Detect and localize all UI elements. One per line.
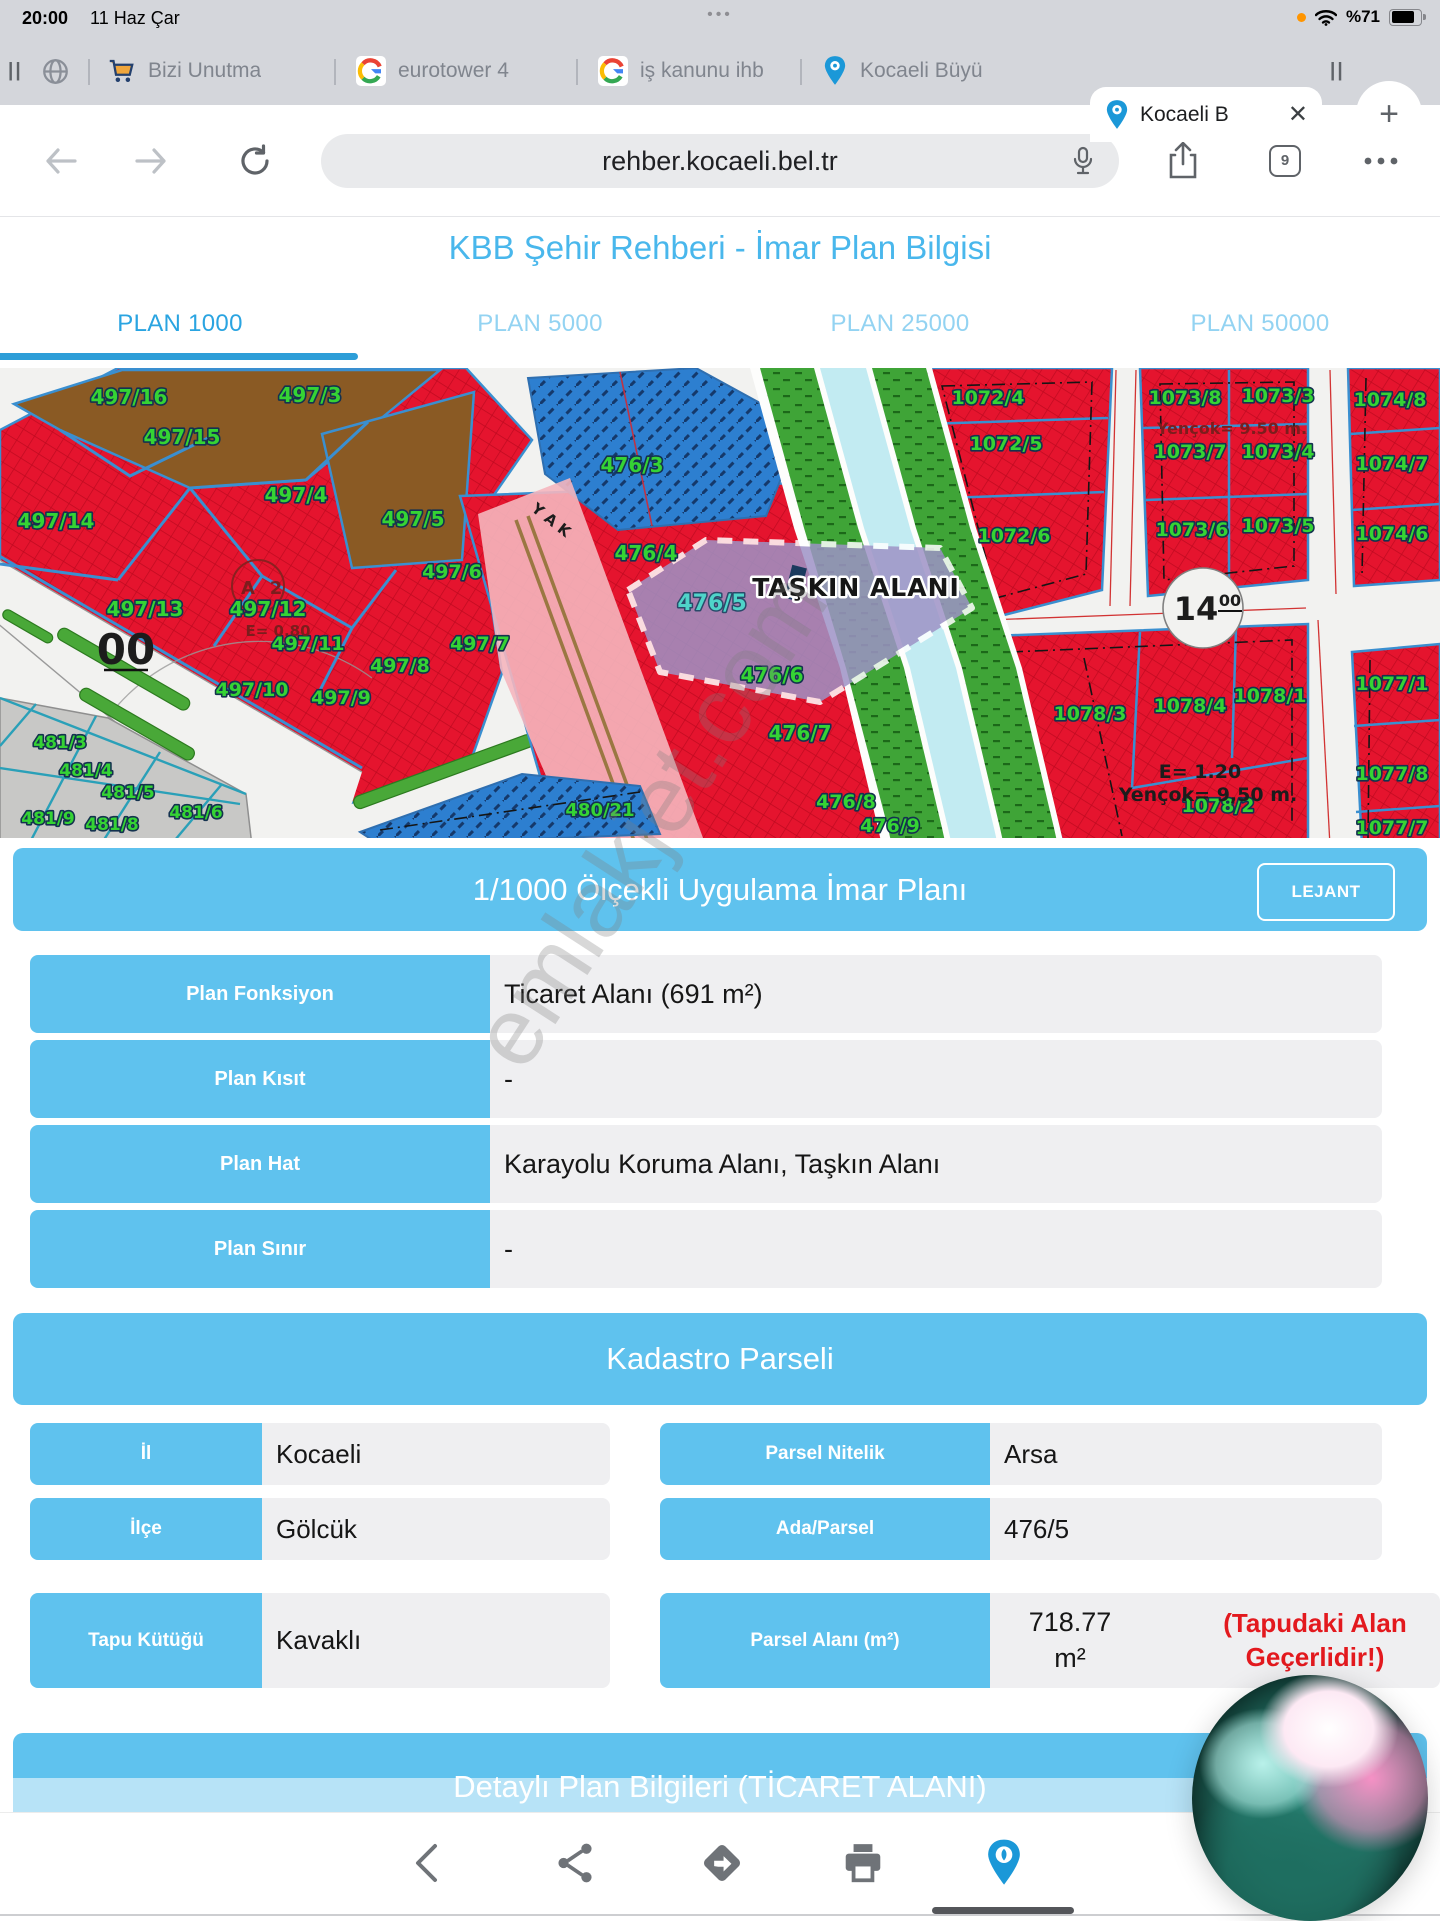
- map-label: 1078/1: [1233, 685, 1306, 707]
- map-label: 1072/5: [969, 433, 1042, 455]
- kadastro-banner: Kadastro Parseli: [13, 1313, 1427, 1405]
- forward-button[interactable]: [126, 105, 176, 216]
- map-label: 497/15: [144, 425, 221, 449]
- url-bar[interactable]: rehber.kocaeli.bel.tr: [321, 134, 1119, 188]
- map-label: Yençok= 9.50 m.: [1156, 419, 1307, 438]
- kocaeli-pin-icon: [1104, 99, 1130, 131]
- wifi-icon: [1315, 9, 1337, 26]
- map-label: 481/5: [101, 783, 155, 803]
- map-label: 476/9: [860, 815, 920, 837]
- cart-icon: [106, 56, 136, 86]
- toolbar-bottom-line: [0, 1914, 1440, 1916]
- map-label: 497/6: [422, 561, 482, 583]
- map-label: 1074/7: [1355, 453, 1428, 475]
- tab-divider: [88, 59, 90, 85]
- row-label: Ada/Parsel: [660, 1498, 990, 1560]
- map-label: 497/13: [107, 597, 184, 621]
- legend-button[interactable]: LEJANT: [1257, 863, 1395, 921]
- row-label: Plan Hat: [30, 1125, 490, 1203]
- map-label: 497/10: [215, 679, 288, 701]
- row-label: Plan Sınır: [30, 1210, 490, 1288]
- kadastro-row-il: İl Kocaeli: [30, 1423, 610, 1485]
- reload-button[interactable]: [230, 105, 280, 216]
- map-label: 1074/6: [1355, 523, 1428, 545]
- map-label: A: [241, 578, 255, 599]
- page-title: KBB Şehir Rehberi - İmar Plan Bilgisi: [0, 216, 1440, 280]
- map-label: 476/6: [741, 663, 804, 687]
- share-icon[interactable]: [549, 1837, 601, 1889]
- row-value: Ticaret Alanı (691 m²): [490, 955, 1382, 1033]
- stage-manager-dots-icon: •••: [0, 6, 1440, 24]
- parsel-alani-unit: m²: [990, 1641, 1150, 1676]
- kbb-logo-icon[interactable]: [978, 1837, 1030, 1889]
- map-label: 497/9: [311, 687, 371, 709]
- map-label: 480/21: [565, 800, 634, 821]
- tab-plan-5000[interactable]: PLAN 5000: [360, 280, 720, 368]
- directions-icon[interactable]: [696, 1837, 748, 1889]
- row-label: Parsel Alanı (m²): [660, 1593, 990, 1688]
- tab-divider: [334, 59, 336, 85]
- tab-is-kanunu[interactable]: iş kanunu ihb: [598, 37, 764, 105]
- row-value: -: [490, 1040, 1382, 1118]
- map-label: 481/3: [33, 733, 87, 753]
- map-label: 481/8: [85, 815, 139, 835]
- print-icon[interactable]: [837, 1837, 889, 1889]
- row-value: Kavaklı: [262, 1593, 610, 1688]
- map-label: 1077/8: [1355, 763, 1428, 785]
- row-label: Plan Kısıt: [30, 1040, 490, 1118]
- map-label: 1077/7: [1355, 817, 1428, 838]
- map-label: 1073/7: [1153, 441, 1226, 463]
- sidebar-grip-icon[interactable]: ||: [8, 37, 23, 105]
- tab-divider: [800, 59, 802, 85]
- url-text: rehber.kocaeli.bel.tr: [602, 146, 838, 177]
- kocaeli-pin-icon: [822, 55, 848, 87]
- row-value: Gölcük: [262, 1498, 610, 1560]
- map-label: 1072/6: [977, 525, 1050, 547]
- tab-count: 9: [1269, 145, 1301, 177]
- tab-label: Kocaeli B: [1140, 103, 1229, 127]
- kadastro-row-adaparsel: Ada/Parsel 476/5: [660, 1498, 1382, 1560]
- tab-eurotower[interactable]: eurotower 4: [356, 37, 509, 105]
- map-label: 497/4: [265, 483, 328, 507]
- kadastro-row-ilce: İlçe Gölcük: [30, 1498, 610, 1560]
- home-indicator[interactable]: [932, 1907, 1074, 1914]
- map-label: 476/7: [769, 721, 832, 745]
- map-label: 1074/8: [1353, 389, 1426, 411]
- map-label: 481/9: [21, 809, 75, 829]
- back-button[interactable]: [36, 105, 86, 216]
- tab-kocaeli-1[interactable]: Kocaeli Büyü: [822, 37, 983, 105]
- google-icon: [598, 56, 628, 86]
- plan-row-fonksiyon: Plan Fonksiyon Ticaret Alanı (691 m²): [30, 955, 1382, 1033]
- row-value: 718.77 m² (Tapudaki Alan Geçerlidir!): [990, 1593, 1440, 1688]
- row-label: Plan Fonksiyon: [30, 955, 490, 1033]
- siri-orb[interactable]: [1192, 1675, 1428, 1921]
- row-value: Kocaeli: [262, 1423, 610, 1485]
- tab-label: Bizi Unutma: [148, 59, 261, 83]
- tab-kocaeli-active[interactable]: Kocaeli B ✕: [1090, 87, 1322, 142]
- map-label: 00: [1219, 591, 1241, 610]
- google-icon: [356, 56, 386, 86]
- parsel-alani-value: 718.77: [990, 1605, 1150, 1640]
- close-tab-icon[interactable]: ✕: [1288, 103, 1308, 127]
- kadastro-row-tapu: Tapu Kütüğü Kavaklı: [30, 1593, 610, 1688]
- map-label: 1078/3: [1053, 703, 1126, 725]
- plan-row-hat: Plan Hat Karayolu Koruma Alanı, Taşkın A…: [30, 1125, 1382, 1203]
- tab-plan-25000[interactable]: PLAN 25000: [720, 280, 1080, 368]
- active-tab-underline: [0, 353, 358, 360]
- row-value: 476/5: [990, 1498, 1382, 1560]
- map-label: 1073/5: [1241, 515, 1314, 537]
- map-label: 497/16: [91, 385, 168, 409]
- tab-bizi-unutma[interactable]: Bizi Unutma: [106, 37, 261, 105]
- imar-plan-map[interactable]: 497/16497/3497/15497/4497/5497/14497/649…: [0, 368, 1440, 838]
- row-label: İl: [30, 1423, 262, 1485]
- browser-tab-strip: || Bizi Unutma eurotower 4 iş kanunu ih: [0, 37, 1440, 105]
- map-label: E= 1.20: [1159, 761, 1241, 783]
- kadastro-row-alan: Parsel Alanı (m²) 718.77 m² (Tapudaki Al…: [660, 1593, 1382, 1688]
- tab-label: Kocaeli Büyü: [860, 59, 983, 83]
- map-label: 2: [270, 578, 283, 599]
- status-bar: 20:00 11 Haz Çar ••• %71: [0, 0, 1440, 37]
- map-label: 497/12: [230, 597, 307, 621]
- plan-banner-title: 1/1000 Ölçekli Uygulama İmar Planı: [473, 872, 968, 908]
- row-label: Parsel Nitelik: [660, 1423, 990, 1485]
- row-label: İlçe: [30, 1498, 262, 1560]
- map-label: 481/4: [59, 761, 113, 781]
- map-label: 1078/4: [1153, 695, 1226, 717]
- tab-grip-icon: ||: [1330, 37, 1345, 105]
- row-value: -: [490, 1210, 1382, 1288]
- tapu-note: (Tapudaki Alan Geçerlidir!): [1190, 1607, 1440, 1675]
- map-label: 1073/8: [1148, 387, 1221, 409]
- map-label: 14: [1174, 590, 1219, 628]
- kadastro-row-nitelik: Parsel Nitelik Arsa: [660, 1423, 1382, 1485]
- map-label: 481/6: [169, 803, 223, 823]
- map-label: 476/4: [615, 541, 678, 565]
- map-label: 497/3: [279, 383, 342, 407]
- map-label: 1072/4: [951, 387, 1024, 409]
- map-label: 476/5: [677, 591, 746, 616]
- map-label: 1073/6: [1155, 519, 1228, 541]
- map-label: 1073/3: [1241, 385, 1314, 407]
- map-label: TAŞKIN ALANI: [752, 573, 960, 602]
- map-label: 00: [97, 625, 155, 674]
- plan-row-kisit: Plan Kısıt -: [30, 1040, 1382, 1118]
- globe-tab-icon[interactable]: [42, 37, 69, 105]
- mic-icon[interactable]: [1071, 146, 1095, 176]
- tab-label: iş kanunu ihb: [640, 59, 764, 83]
- battery-percent: %71: [1346, 7, 1380, 27]
- tab-divider: [576, 59, 578, 85]
- map-label: 1073/4: [1241, 441, 1314, 463]
- new-tab-button[interactable]: +: [1356, 81, 1422, 147]
- plan-row-sinir: Plan Sınır -: [30, 1210, 1382, 1288]
- mic-indicator-icon: [1297, 13, 1306, 22]
- tab-label: eurotower 4: [398, 59, 509, 83]
- map-label: 497/14: [18, 509, 95, 533]
- plan-banner: 1/1000 Ölçekli Uygulama İmar Planı LEJAN…: [13, 848, 1427, 931]
- map-label: 497/5: [382, 507, 445, 531]
- tab-plan-50000[interactable]: PLAN 50000: [1080, 280, 1440, 368]
- map-label: 476/8: [816, 791, 876, 813]
- map-label: 476/3: [601, 453, 664, 477]
- row-value: Karayolu Koruma Alanı, Taşkın Alanı: [490, 1125, 1382, 1203]
- map-label: 1077/1: [1355, 673, 1428, 695]
- map-label: E= 0.80: [245, 622, 310, 640]
- back-chevron-button[interactable]: [400, 1837, 452, 1889]
- map-label: 497/8: [370, 655, 430, 677]
- row-value: Arsa: [990, 1423, 1382, 1485]
- battery-icon: [1389, 9, 1422, 26]
- map-label: 497/7: [450, 633, 510, 655]
- map-label: Yençok= 9,50 m.: [1118, 784, 1297, 806]
- row-label: Tapu Kütüğü: [30, 1593, 262, 1688]
